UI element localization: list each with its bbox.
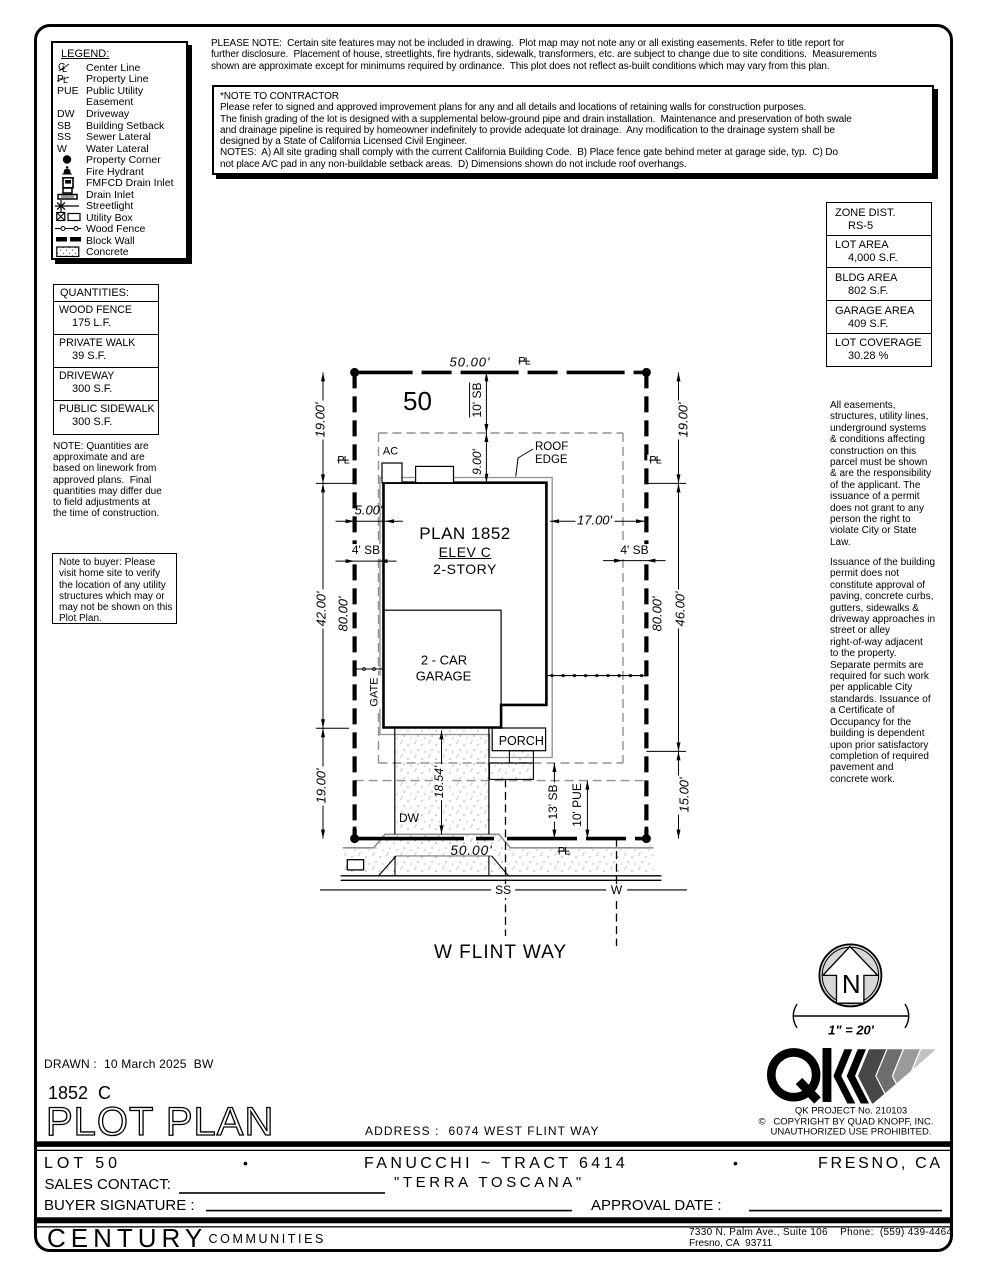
svg-text:L: L: [63, 75, 68, 84]
